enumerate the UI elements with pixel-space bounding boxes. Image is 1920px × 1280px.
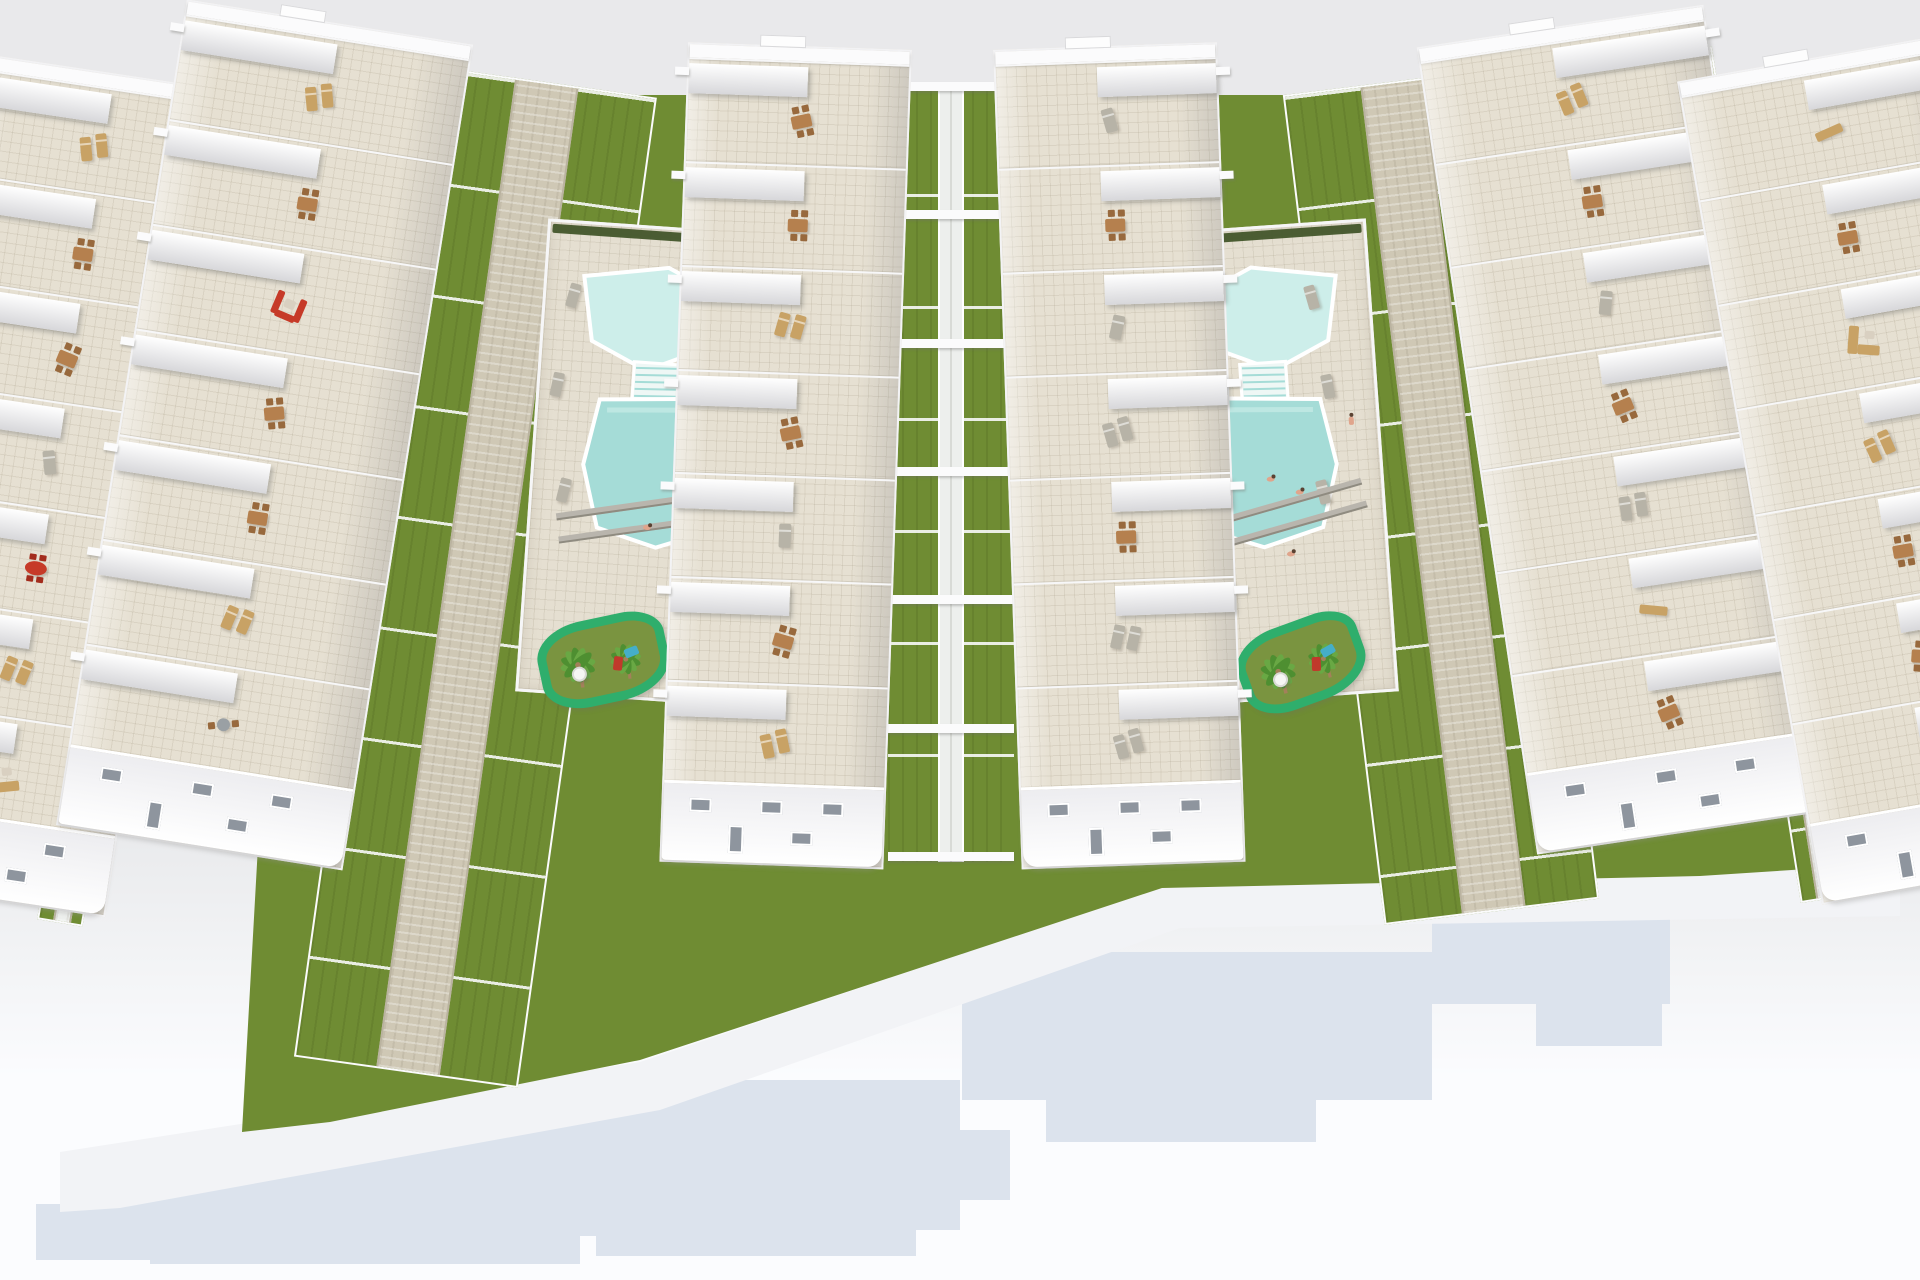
dining-table bbox=[246, 511, 268, 527]
terrace-furniture-sofa_l_tan bbox=[1847, 326, 1885, 358]
facade-window bbox=[790, 831, 812, 846]
facade-door bbox=[144, 800, 163, 830]
facade-window bbox=[1150, 829, 1172, 844]
facade-window bbox=[1845, 831, 1869, 849]
dining-table bbox=[1892, 543, 1914, 559]
dividing-wall-stub bbox=[1219, 170, 1233, 178]
lounger-backrest bbox=[1600, 296, 1612, 299]
facade-window bbox=[42, 843, 66, 860]
palm-tree-icon bbox=[602, 637, 649, 684]
sun-lounger bbox=[1102, 422, 1119, 448]
l-sofa-base bbox=[1858, 344, 1881, 356]
street-facade bbox=[1021, 780, 1244, 868]
dining-chair bbox=[77, 238, 85, 246]
terrace-furniture-dining bbox=[63, 236, 103, 271]
furniture-anchor bbox=[205, 711, 243, 744]
dining-chair bbox=[278, 421, 286, 429]
dining-chair bbox=[1620, 388, 1629, 397]
facade-window bbox=[1654, 768, 1678, 785]
alley-cross-wall bbox=[888, 210, 1014, 219]
terrace-furniture-dining bbox=[45, 338, 90, 379]
dining-chair bbox=[1120, 545, 1127, 552]
facade-window bbox=[1698, 792, 1722, 809]
terrace-furniture-lounger_single bbox=[1091, 102, 1134, 141]
terrace-furniture-sofa_l_tan bbox=[0, 762, 24, 795]
sun-lounger bbox=[779, 523, 792, 547]
apartment-roof-terrace bbox=[668, 576, 891, 687]
dining-chair bbox=[258, 527, 266, 535]
terrace-furniture-loungers_tan bbox=[759, 726, 800, 763]
furniture-anchor bbox=[304, 82, 342, 115]
apartment-roof-terrace bbox=[1017, 680, 1240, 791]
dining-chair bbox=[1665, 721, 1674, 730]
dining-table bbox=[788, 219, 808, 233]
dining-chair bbox=[1839, 222, 1847, 230]
dining-chair bbox=[1675, 717, 1684, 726]
lounger-backrest bbox=[779, 317, 790, 322]
apartment-roof-terrace bbox=[686, 57, 909, 168]
lounger-backrest bbox=[1321, 379, 1332, 383]
furniture-anchor bbox=[218, 602, 263, 644]
apartment-roof-terrace bbox=[999, 161, 1222, 272]
terrace-furniture-loungers_gray bbox=[1112, 725, 1155, 764]
dining-chair bbox=[83, 263, 91, 271]
dining-chair bbox=[797, 130, 805, 138]
sun-lounger bbox=[1101, 108, 1119, 134]
terrace-furniture-bistro bbox=[205, 711, 243, 744]
terrace-furniture-loungers_gray bbox=[1101, 413, 1144, 452]
dining-chair bbox=[261, 504, 269, 512]
lounger-backrest bbox=[559, 483, 570, 488]
furniture-anchor bbox=[1634, 594, 1673, 627]
furniture-anchor bbox=[1108, 521, 1145, 552]
dividing-wall-stub bbox=[660, 482, 674, 490]
lounger-backrest bbox=[321, 89, 332, 92]
dining-chair bbox=[792, 107, 800, 115]
dining-chair bbox=[73, 346, 82, 355]
lounger-backrest bbox=[553, 377, 564, 381]
red-chair bbox=[26, 575, 34, 582]
lounger-backrest bbox=[5, 660, 16, 666]
furniture-anchor bbox=[1903, 639, 1920, 671]
furniture-anchor bbox=[1097, 209, 1134, 240]
furniture-anchor bbox=[0, 653, 42, 694]
lounger-backrest bbox=[776, 734, 787, 738]
person-in-pool bbox=[1287, 549, 1297, 559]
dining-chair bbox=[1610, 392, 1619, 401]
dining-chair bbox=[301, 188, 309, 196]
dining-chair bbox=[1656, 699, 1665, 708]
upper-terrace-wall bbox=[1111, 478, 1231, 512]
dining-chair bbox=[1843, 246, 1851, 254]
dining-chair bbox=[266, 398, 274, 406]
facade-door bbox=[728, 825, 744, 854]
dining-chair bbox=[796, 440, 804, 448]
lounger-backrest bbox=[1305, 290, 1316, 295]
facade-window bbox=[190, 781, 214, 798]
terrace-furniture-dining bbox=[780, 210, 817, 241]
terrace-furniture-loungers_tan bbox=[218, 602, 263, 644]
dining-chair bbox=[248, 526, 256, 534]
dining-chair bbox=[64, 368, 73, 377]
dining-chair bbox=[1108, 210, 1115, 217]
lounger-backrest bbox=[80, 142, 91, 145]
dividing-wall-stub bbox=[657, 586, 671, 594]
sun-lounger bbox=[1128, 727, 1145, 753]
terrace-furniture-dining bbox=[1600, 385, 1645, 426]
play-slide-red bbox=[1311, 657, 1320, 671]
facade-window bbox=[760, 800, 782, 815]
play-slide-red bbox=[613, 655, 623, 670]
terrace-furniture-lounger_single bbox=[32, 447, 71, 480]
furniture-anchor bbox=[255, 397, 293, 430]
furniture-anchor bbox=[1883, 533, 1920, 569]
dividing-wall-stub bbox=[653, 689, 667, 697]
furniture-anchor bbox=[1101, 413, 1144, 452]
bench-seat bbox=[1639, 604, 1668, 616]
dining-chair bbox=[1129, 521, 1136, 528]
furniture-anchor bbox=[1091, 102, 1134, 141]
red-chair bbox=[39, 555, 47, 562]
bistro-table bbox=[216, 717, 230, 731]
person-in-pool bbox=[1267, 475, 1277, 485]
playground bbox=[531, 604, 676, 715]
facade-door bbox=[1618, 801, 1637, 831]
lounger-backrest bbox=[1866, 443, 1877, 449]
upper-terrace-wall bbox=[688, 63, 808, 97]
lounger-backrest bbox=[779, 529, 791, 531]
terrace-furniture-loungers_tan bbox=[79, 132, 118, 165]
upper-terrace-wall bbox=[670, 582, 790, 616]
dining-chair bbox=[779, 624, 788, 633]
terrace-furniture-dining bbox=[762, 621, 805, 660]
dining-chair bbox=[1596, 209, 1604, 217]
apartment-roof-terrace bbox=[671, 472, 894, 583]
furniture-anchor bbox=[762, 621, 805, 660]
dining-chair bbox=[1119, 234, 1126, 241]
facade-window bbox=[1180, 798, 1202, 813]
dining-chair bbox=[802, 105, 810, 113]
dining-chair bbox=[1848, 221, 1856, 229]
dining-chair bbox=[1894, 536, 1902, 544]
row-3 bbox=[659, 42, 911, 869]
furniture-anchor bbox=[770, 415, 811, 452]
dining-chair bbox=[311, 189, 319, 197]
lounger-backrest bbox=[226, 609, 237, 615]
lounger-backrest bbox=[1635, 498, 1646, 502]
dining-chair bbox=[772, 647, 781, 656]
sun-lounger bbox=[1110, 624, 1126, 650]
lounger-backrest bbox=[1571, 88, 1582, 94]
dividing-wall-stub bbox=[1223, 274, 1237, 282]
person-body bbox=[1349, 416, 1355, 424]
lounger-backrest bbox=[1102, 113, 1114, 118]
person-in-pool bbox=[1296, 487, 1306, 497]
apartment-roof-terrace bbox=[1010, 472, 1233, 583]
terrace-furniture-dining bbox=[1828, 219, 1869, 255]
roof-access-tab bbox=[1065, 36, 1111, 50]
sun-lounger bbox=[1598, 290, 1612, 315]
sun-lounger bbox=[1126, 625, 1142, 651]
sun-lounger bbox=[1877, 429, 1897, 455]
terrace-furniture-dining bbox=[1572, 184, 1612, 219]
dining-chair bbox=[268, 422, 276, 430]
dining-chair bbox=[1620, 414, 1629, 423]
dining-chair bbox=[1914, 664, 1920, 671]
dining-table bbox=[1105, 219, 1125, 233]
upper-terrace-wall bbox=[681, 271, 801, 305]
bistro-chair bbox=[207, 722, 215, 730]
dining-chair bbox=[1118, 210, 1125, 217]
person-head bbox=[1272, 475, 1276, 479]
dining-chair bbox=[1915, 640, 1920, 647]
terrace-furniture-dining bbox=[770, 415, 811, 452]
dividing-wall-stub bbox=[1230, 482, 1244, 490]
terrace-furniture-loungers_gray bbox=[1618, 491, 1658, 526]
terrace-furniture-lounger_single bbox=[1588, 287, 1627, 320]
bistro-chair bbox=[231, 719, 239, 727]
bench-seat bbox=[1815, 122, 1844, 142]
upper-terrace-wall bbox=[1097, 63, 1217, 97]
sun-lounger bbox=[320, 83, 333, 108]
dividing-wall-stub bbox=[664, 378, 678, 386]
dining-chair bbox=[1109, 234, 1116, 241]
apartment-roof-terrace bbox=[1014, 576, 1237, 687]
facade-door bbox=[1088, 828, 1104, 857]
terrace-furniture-dining bbox=[1108, 521, 1145, 552]
furniture-anchor bbox=[1600, 385, 1645, 426]
dining-chair bbox=[782, 650, 791, 659]
upper-terrace-wall bbox=[1119, 686, 1239, 720]
furniture-anchor bbox=[237, 500, 277, 535]
facade-window bbox=[822, 802, 844, 817]
terrace-furniture-loungers_gray bbox=[1109, 622, 1150, 659]
upper-terrace-wall bbox=[677, 375, 797, 409]
lounger-backrest bbox=[1104, 428, 1115, 433]
facade-window bbox=[269, 793, 293, 810]
facade-window bbox=[1733, 756, 1757, 773]
terrace-furniture-lounger_single bbox=[769, 521, 806, 552]
terrace-furniture-dining bbox=[287, 186, 327, 221]
furniture-anchor bbox=[1554, 79, 1599, 120]
sun-lounger bbox=[1117, 416, 1134, 442]
sun-lounger bbox=[305, 86, 318, 111]
dining-chair bbox=[789, 627, 798, 636]
sun-lounger bbox=[1618, 496, 1632, 521]
upper-terrace-wall bbox=[1101, 167, 1221, 201]
facade-window bbox=[100, 767, 124, 784]
furniture-anchor bbox=[769, 521, 806, 552]
dining-chair bbox=[1853, 244, 1861, 252]
dining-chair bbox=[801, 234, 808, 241]
alley-cross-wall bbox=[888, 724, 1014, 733]
red-sofa-bottom bbox=[273, 309, 295, 324]
furniture-anchor bbox=[1618, 491, 1658, 526]
lounger-backrest bbox=[1112, 320, 1124, 324]
lounger-backrest bbox=[1879, 434, 1890, 440]
dining-table bbox=[72, 246, 94, 262]
lounger-backrest bbox=[1130, 631, 1141, 635]
sun-lounger bbox=[1569, 82, 1588, 108]
terrace-furniture-dining bbox=[255, 397, 293, 430]
apartment-roof-terrace bbox=[664, 680, 887, 791]
furniture-anchor bbox=[32, 447, 71, 480]
person-head bbox=[1301, 487, 1305, 491]
dining-chair bbox=[781, 418, 789, 426]
alley-cross-wall bbox=[888, 595, 1014, 604]
dining-chair bbox=[791, 416, 799, 424]
upper-terrace-wall bbox=[674, 478, 794, 512]
dining-chair bbox=[64, 342, 73, 351]
sun-lounger bbox=[95, 133, 108, 158]
furniture-anchor bbox=[781, 103, 822, 140]
palm-tree-icon bbox=[1299, 635, 1350, 686]
alley-cross-wall bbox=[888, 467, 1014, 476]
person-head bbox=[1349, 412, 1353, 416]
sun-lounger bbox=[42, 450, 56, 475]
dining-chair bbox=[791, 234, 798, 241]
sun-lounger bbox=[1634, 492, 1648, 517]
terrace-furniture-loungers_tan bbox=[1554, 79, 1599, 120]
dining-table bbox=[1911, 649, 1920, 663]
terrace-furniture-dining bbox=[781, 103, 822, 140]
dining-table bbox=[1116, 530, 1136, 544]
furniture-anchor bbox=[79, 132, 118, 165]
lounger-backrest bbox=[1619, 502, 1630, 506]
furniture-anchor bbox=[1109, 622, 1150, 659]
roof-access-tab bbox=[760, 35, 806, 49]
apartment-roof-terrace bbox=[996, 57, 1219, 168]
terrace-furniture-dining bbox=[1646, 692, 1691, 733]
terrace-furniture-bench bbox=[1634, 594, 1673, 627]
sun-lounger bbox=[760, 733, 776, 759]
dividing-wall-stub bbox=[1216, 67, 1230, 75]
architectural-render-scene bbox=[0, 0, 1920, 1280]
dining-chair bbox=[1593, 185, 1601, 193]
furniture-anchor bbox=[1828, 219, 1869, 255]
l-sofa-base bbox=[0, 780, 20, 792]
lounger-backrest bbox=[242, 614, 253, 620]
furniture-anchor bbox=[1588, 287, 1627, 320]
dining-chair bbox=[1130, 545, 1137, 552]
facade-window bbox=[1118, 800, 1140, 815]
terrace-furniture-loungers_tan bbox=[1862, 425, 1907, 467]
dining-chair bbox=[1665, 695, 1674, 704]
furniture-anchor bbox=[63, 236, 103, 271]
facade-door bbox=[1897, 850, 1917, 880]
alley-cross-wall bbox=[888, 339, 1014, 348]
dividing-wall-stub bbox=[668, 274, 682, 282]
person-head bbox=[1292, 549, 1296, 553]
facade-window bbox=[4, 867, 28, 884]
dining-chair bbox=[74, 262, 82, 270]
lounger-backrest bbox=[96, 139, 107, 142]
furniture-anchor bbox=[287, 186, 327, 221]
furniture-anchor bbox=[1807, 112, 1852, 154]
sun-lounger bbox=[235, 608, 255, 634]
lounger-backrest bbox=[1114, 630, 1125, 634]
lounger-backrest bbox=[569, 288, 580, 293]
dining-chair bbox=[1629, 410, 1638, 419]
terrace-furniture-loungers_tan bbox=[0, 653, 42, 694]
dining-table bbox=[263, 406, 284, 421]
lounger-backrest bbox=[43, 456, 55, 459]
facade-window bbox=[225, 817, 249, 834]
dining-chair bbox=[1119, 521, 1126, 528]
furniture-anchor bbox=[45, 338, 90, 379]
lounger-backrest bbox=[761, 739, 772, 743]
dividing-wall-stub bbox=[1227, 378, 1241, 386]
dividing-wall-stub bbox=[1234, 586, 1248, 594]
lounger-backrest bbox=[1115, 739, 1126, 744]
dividing-wall-stub bbox=[675, 67, 689, 75]
person-in-pool bbox=[643, 523, 653, 533]
dining-chair bbox=[786, 442, 794, 450]
facade-window bbox=[1564, 782, 1588, 799]
row-4 bbox=[993, 42, 1245, 869]
sun-lounger bbox=[1555, 90, 1574, 116]
terrace-furniture-loungers_tan bbox=[304, 82, 342, 115]
terrace-furniture-dining bbox=[237, 500, 277, 535]
sun-lounger bbox=[79, 136, 92, 161]
furniture-anchor bbox=[1847, 326, 1885, 358]
dining-chair bbox=[807, 128, 815, 136]
furniture-anchor bbox=[0, 762, 24, 795]
apartment-roof-terrace bbox=[679, 265, 902, 376]
upper-terrace-wall bbox=[1115, 582, 1235, 616]
furniture-anchor bbox=[16, 551, 56, 586]
terrace-furniture-bench bbox=[1807, 112, 1852, 154]
dining-chair bbox=[298, 211, 306, 219]
sun-lounger bbox=[774, 312, 791, 338]
central-alley bbox=[888, 82, 1014, 862]
terrace-furniture-dining bbox=[1097, 209, 1134, 240]
terrace-furniture-loungers_tan bbox=[773, 310, 816, 349]
terrace-furniture-dining bbox=[1883, 533, 1920, 569]
dining-chair bbox=[307, 213, 315, 221]
person-on-deck bbox=[1347, 412, 1356, 425]
apartment-roof-terrace bbox=[675, 369, 898, 480]
lounger-backrest bbox=[1129, 733, 1140, 738]
upper-terrace-wall bbox=[1108, 375, 1228, 409]
lounger-backrest bbox=[1557, 96, 1568, 102]
sofa-table bbox=[283, 298, 297, 311]
facade-window bbox=[690, 798, 712, 813]
furniture-anchor bbox=[1572, 184, 1612, 219]
dining-chair bbox=[1586, 211, 1594, 219]
dining-table bbox=[1837, 230, 1859, 246]
sun-lounger bbox=[1109, 314, 1126, 340]
furniture-anchor bbox=[773, 310, 816, 349]
furniture-anchor bbox=[1862, 425, 1907, 467]
terrace-furniture-dining bbox=[1903, 639, 1920, 671]
apartment-roof-terrace bbox=[1003, 265, 1226, 376]
dining-chair bbox=[1898, 560, 1906, 568]
furniture-anchor bbox=[759, 726, 800, 763]
upper-terrace-wall bbox=[1104, 271, 1224, 305]
red-chair bbox=[29, 554, 37, 561]
sun-lounger bbox=[15, 659, 34, 685]
sun-lounger bbox=[1113, 733, 1130, 759]
sun-lounger bbox=[790, 314, 807, 340]
dining-chair bbox=[1904, 534, 1912, 542]
dining-chair bbox=[1908, 558, 1916, 566]
furniture-anchor bbox=[780, 210, 817, 241]
red-chair bbox=[36, 577, 44, 584]
dining-chair bbox=[87, 239, 95, 247]
lounger-backrest bbox=[21, 664, 32, 670]
terrace-furniture-dining_red bbox=[16, 551, 56, 586]
